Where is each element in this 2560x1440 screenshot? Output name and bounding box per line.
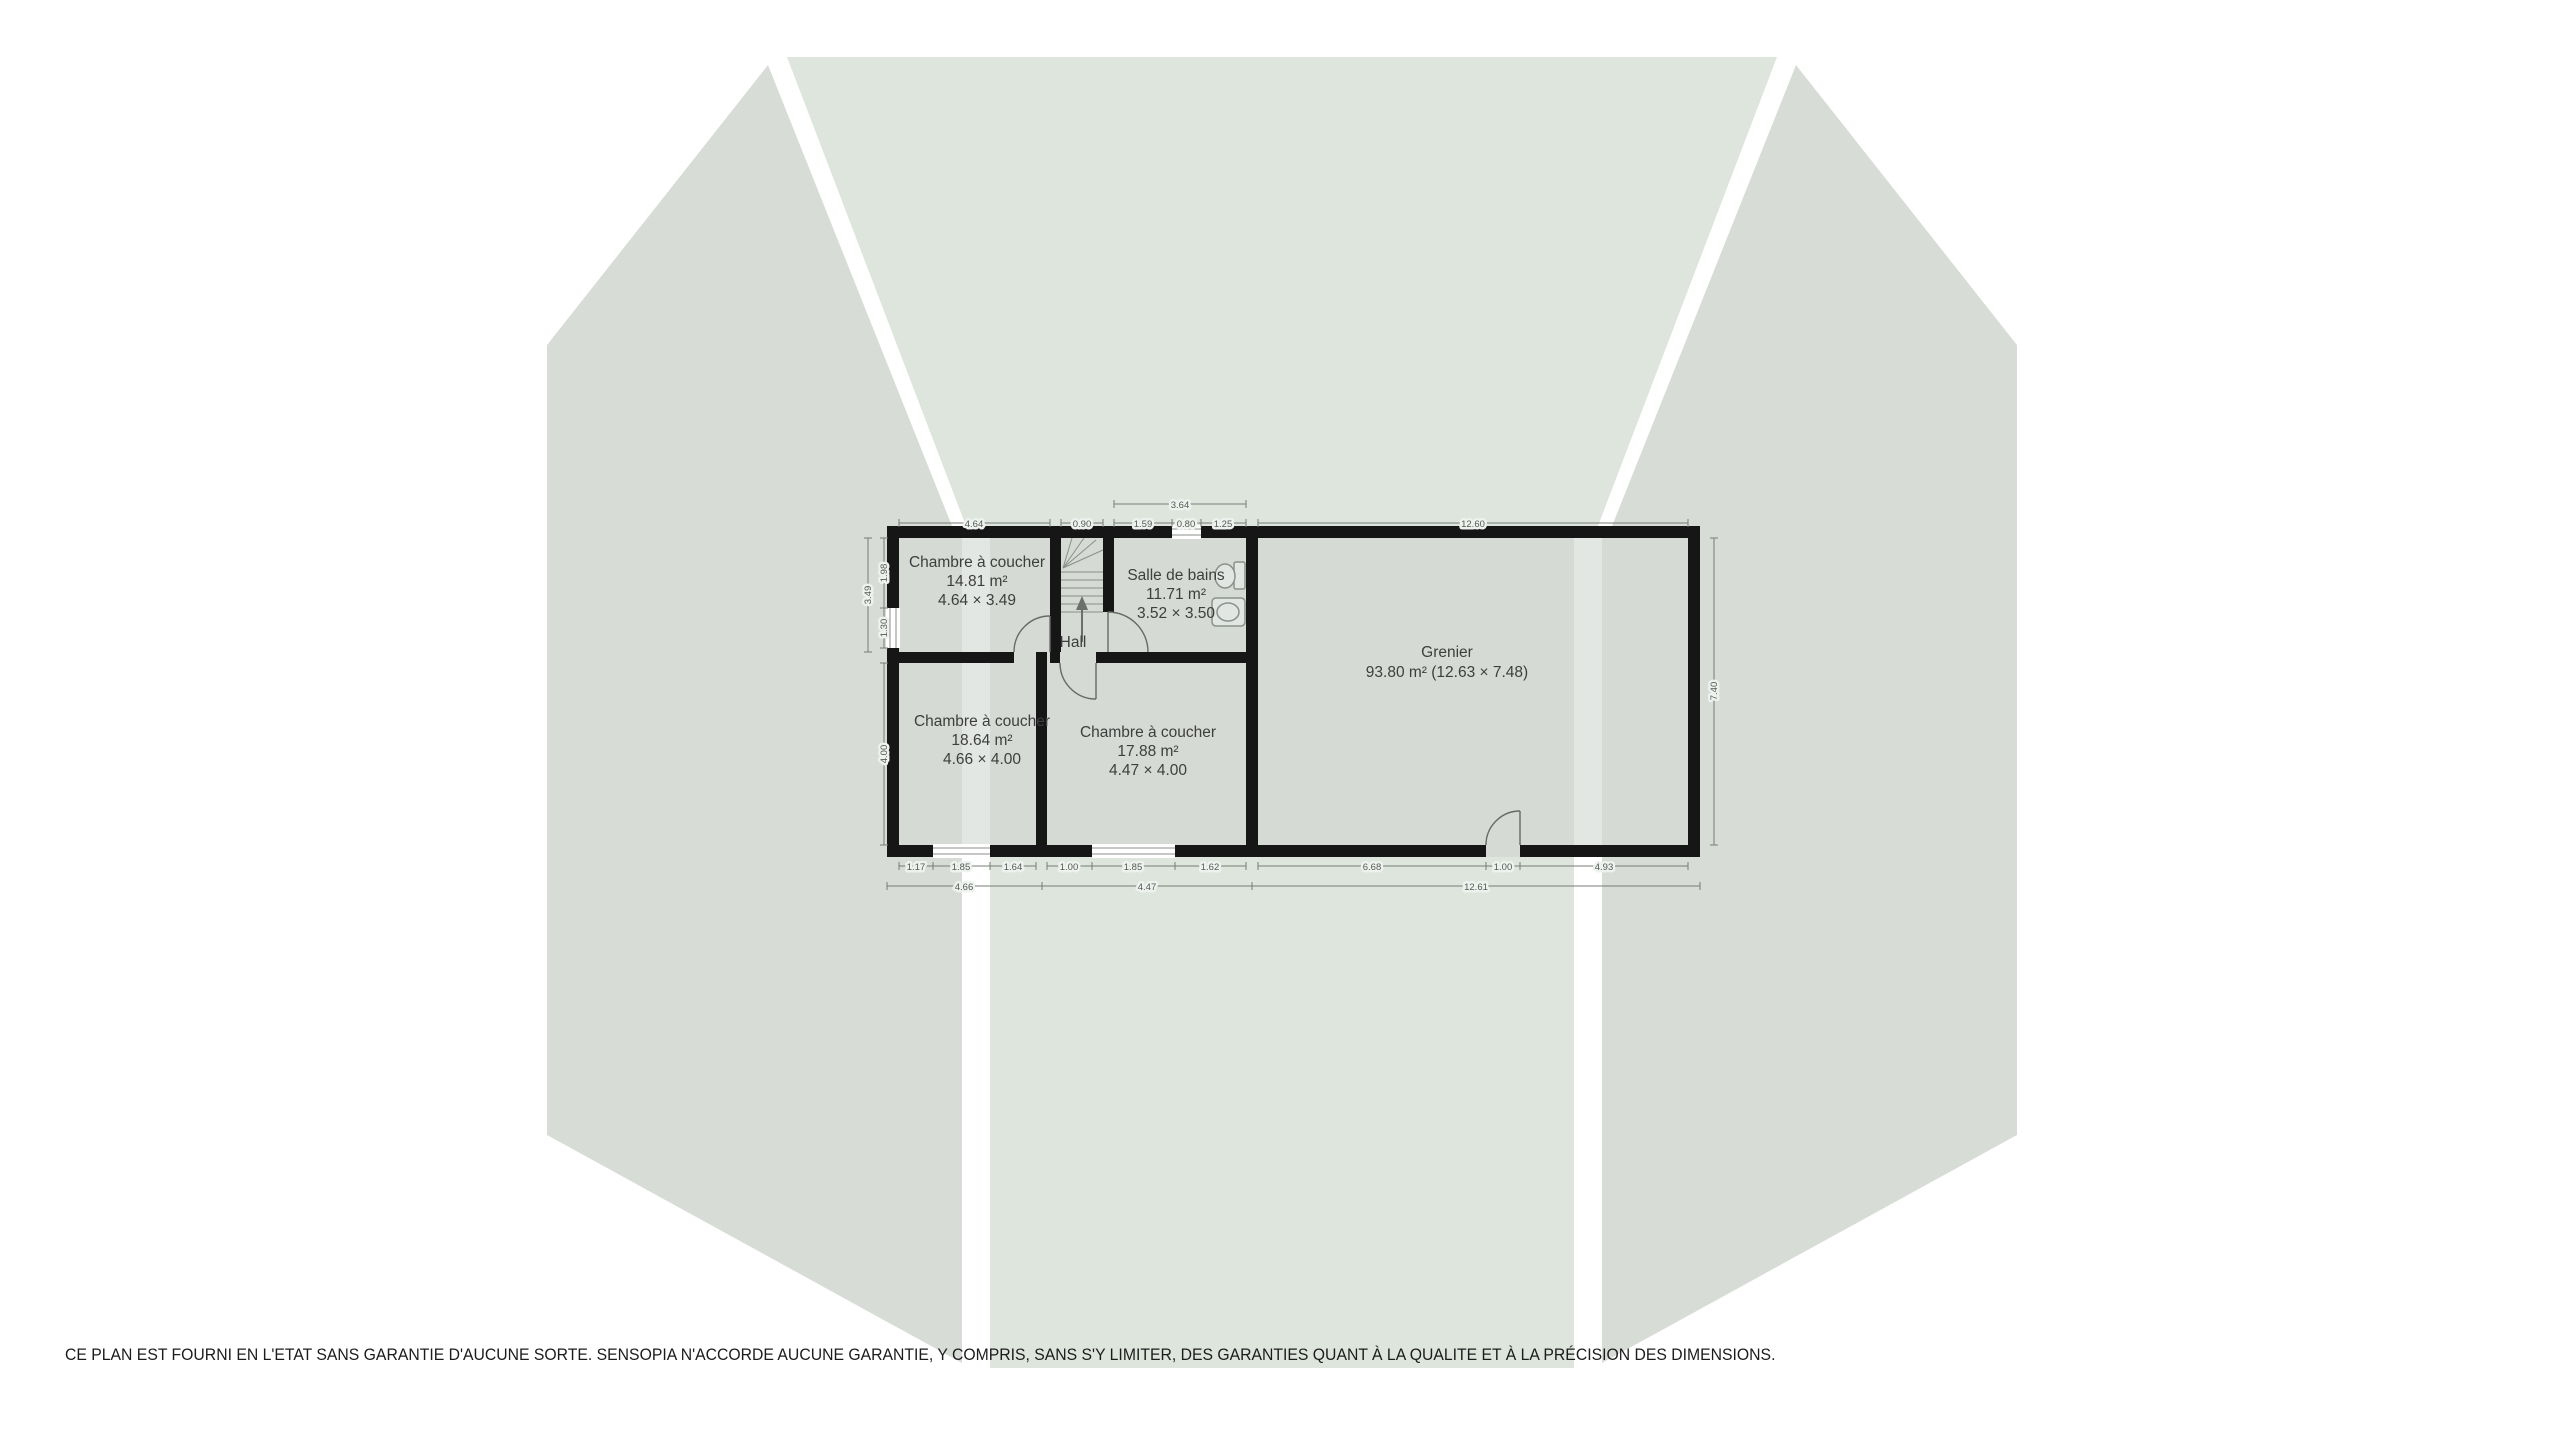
dimension-label: 1.62: [1201, 862, 1220, 873]
dimension-label: 1.00: [1494, 862, 1513, 873]
room-area: 17.88 m²: [1117, 743, 1178, 760]
room-size: 3.52 × 3.50: [1137, 605, 1215, 622]
floorplan-canvas: Chambre à coucher 14.81 m² 4.64 × 3.49 S…: [0, 0, 2560, 1440]
dimension-label: 4.64: [965, 519, 984, 530]
wall-bedroom-divider: [1036, 652, 1047, 857]
dimension-label: 4.47: [1138, 882, 1157, 893]
dimension-label: 1.98: [879, 564, 890, 583]
room-area: 93.80 m² (12.63 × 7.48): [1366, 664, 1528, 681]
wall-outer-top: [887, 526, 1700, 538]
wall-hall-south-2: [1050, 652, 1060, 663]
room-name: Salle de bains: [1127, 567, 1225, 584]
room-name: Chambre à coucher: [1080, 724, 1216, 741]
dimension-label: 1.64: [1004, 862, 1023, 873]
window-bottom-bedroom-mid: [1092, 844, 1175, 858]
dimension-label: 1.30: [879, 619, 890, 638]
dimension-label: 1.17: [907, 862, 926, 873]
wall-hall-south-3: [1096, 652, 1258, 663]
floorplan: Chambre à coucher 14.81 m² 4.64 × 3.49 S…: [863, 500, 1720, 893]
sink-icon: [1212, 598, 1245, 626]
window-bottom-bedroom-left: [933, 844, 990, 858]
dimension-label: 1.85: [952, 862, 971, 873]
dimension-label: 3.64: [1171, 500, 1190, 511]
dimension-label: 1.00: [1060, 862, 1079, 873]
disclaimer-text: CE PLAN EST FOURNI EN L'ETAT SANS GARANT…: [65, 1346, 1880, 1365]
room-size: 4.66 × 4.00: [943, 751, 1021, 768]
room-area: 11.71 m²: [1146, 586, 1206, 603]
wall-outer-right: [1688, 526, 1700, 857]
room-area: 18.64 m²: [951, 732, 1012, 749]
dimension-label: 7.40: [1709, 682, 1720, 701]
room-name: Grenier: [1421, 644, 1473, 661]
dimension-label: 4.93: [1595, 862, 1614, 873]
room-size: 4.47 × 4.00: [1109, 762, 1187, 779]
room-area: 14.81 m²: [946, 573, 1007, 590]
attic-door-gap: [1486, 845, 1520, 857]
dimension-label: 1.59: [1134, 519, 1153, 530]
dimension-label: 1.25: [1214, 519, 1233, 530]
dimension-label: 3.49: [863, 586, 874, 605]
dimension-label: 4.66: [955, 882, 974, 893]
floorplan-page: Chambre à coucher 14.81 m² 4.64 × 3.49 S…: [0, 0, 2560, 1440]
dimension-label: 1.85: [1124, 862, 1143, 873]
room-name: Chambre à coucher: [909, 554, 1045, 571]
wall-outer-bottom: [887, 845, 1700, 857]
wall-hall-south-1: [887, 652, 1014, 663]
room-name: Chambre à coucher: [914, 713, 1050, 730]
dimension-label: 12.60: [1461, 519, 1485, 530]
dimension-label: 12.61: [1464, 882, 1488, 893]
wall-attic-divider: [1246, 526, 1258, 857]
room-size: 4.64 × 3.49: [938, 592, 1016, 609]
room-name: Hall: [1060, 634, 1087, 651]
dimension-label: 6.68: [1363, 862, 1382, 873]
light-stripe-right: [1574, 526, 1602, 857]
room-label-hall: Hall: [1060, 634, 1087, 651]
dimension-label: 0.90: [1073, 519, 1092, 530]
dimension-label: 0.80: [1177, 519, 1196, 530]
wall-stair-right: [1103, 526, 1114, 612]
dimension-label: 4.00: [879, 745, 890, 764]
